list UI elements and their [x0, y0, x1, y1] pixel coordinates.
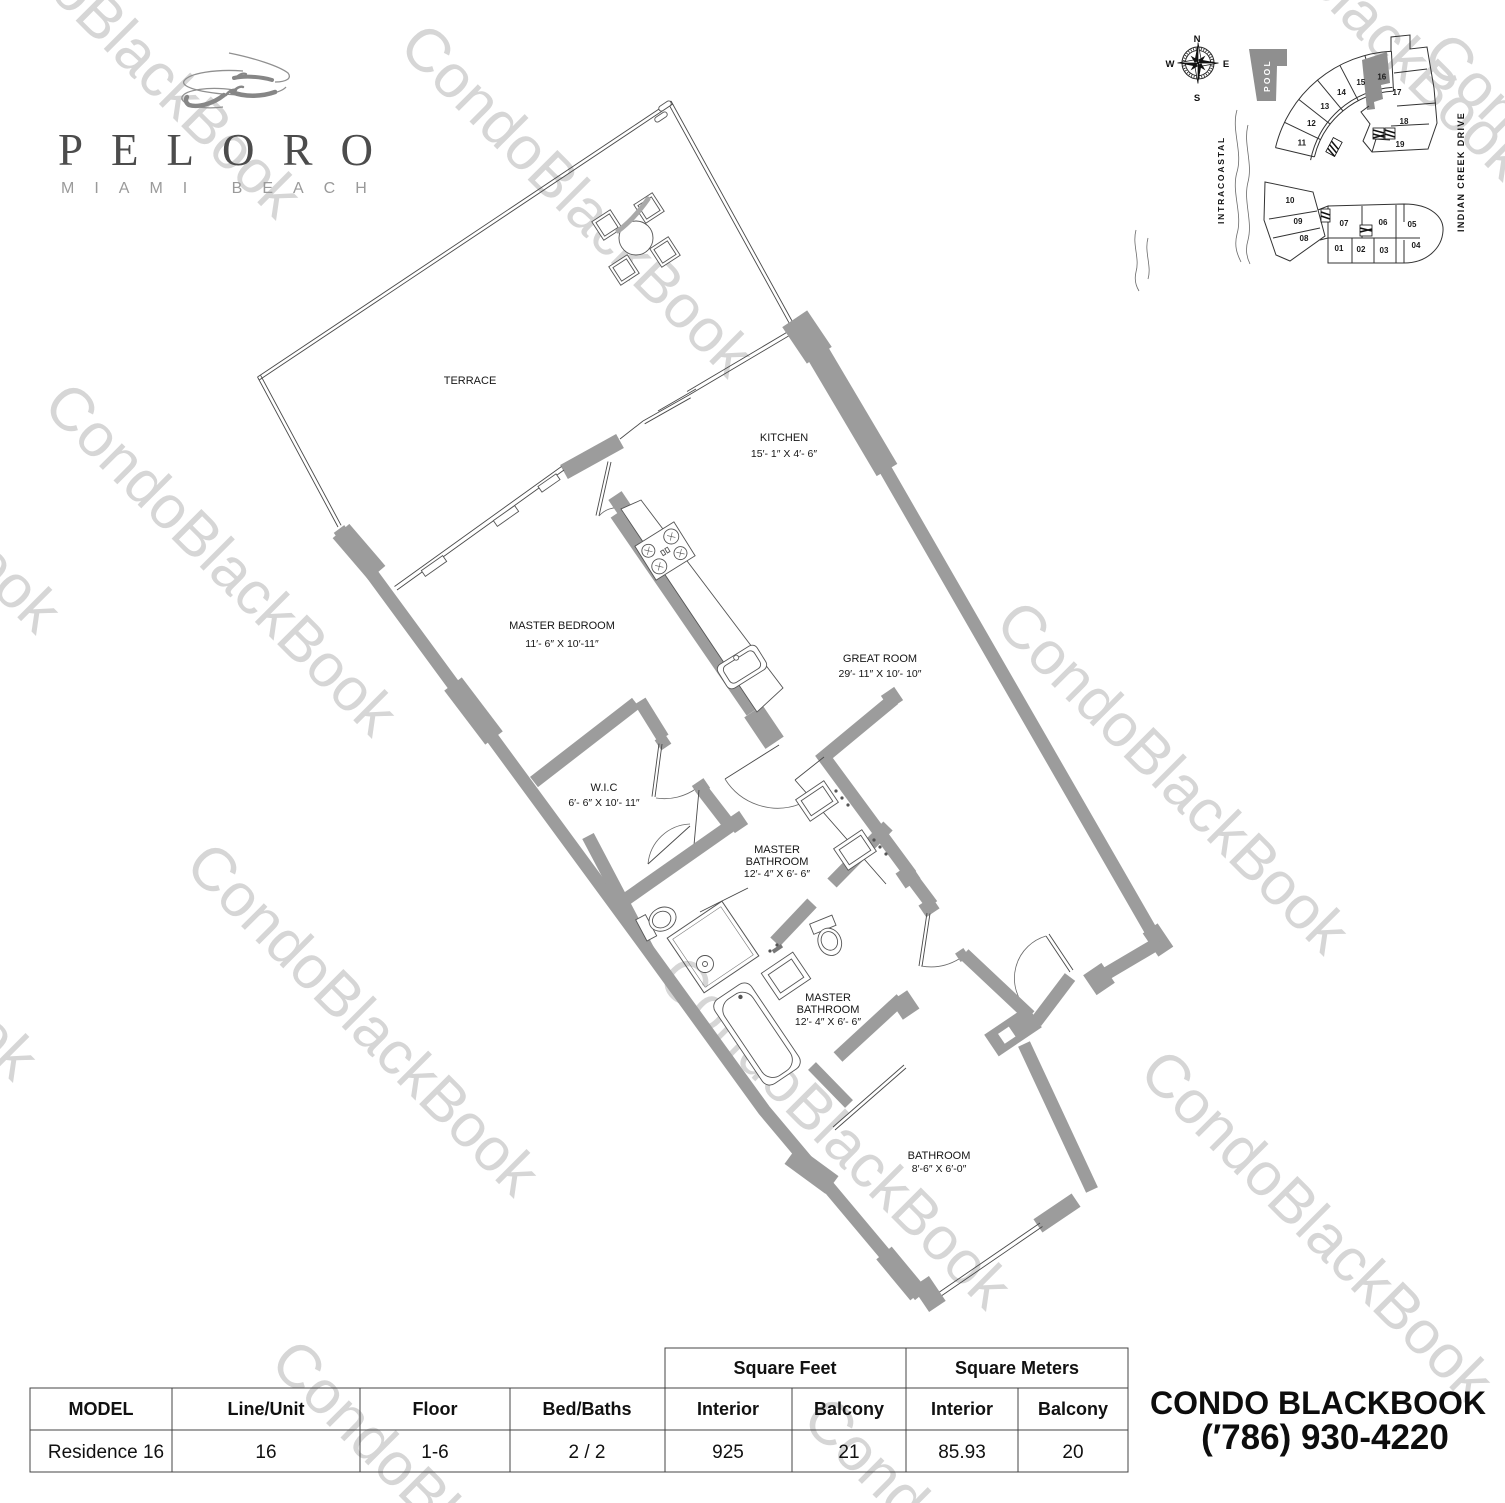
- svg-text:Interior: Interior: [931, 1399, 993, 1419]
- svg-text:05: 05: [1408, 220, 1417, 229]
- svg-text:8′-6″ X 6′-0″: 8′-6″ X 6′-0″: [912, 1163, 967, 1175]
- svg-text:08: 08: [1300, 234, 1309, 243]
- svg-text:29′- 11″ X 10′- 10″: 29′- 11″ X 10′- 10″: [839, 668, 922, 680]
- svg-text:(′786) 930-4220: (′786) 930-4220: [1201, 1418, 1449, 1457]
- svg-text:Bed/Baths: Bed/Baths: [542, 1399, 631, 1419]
- svg-text:12′- 4″ X 6′- 6″: 12′- 4″ X 6′- 6″: [744, 868, 811, 880]
- svg-text:03: 03: [1380, 246, 1389, 255]
- svg-text:Floor: Floor: [413, 1399, 458, 1419]
- svg-text:Balcony: Balcony: [814, 1399, 884, 1419]
- svg-text:07: 07: [1340, 219, 1349, 228]
- svg-text:925: 925: [712, 1442, 744, 1463]
- svg-text:INDIAN CREEK DRIVE: INDIAN CREEK DRIVE: [1456, 112, 1466, 232]
- svg-text:Line/Unit: Line/Unit: [228, 1399, 305, 1419]
- svg-text:2 / 2: 2 / 2: [569, 1442, 606, 1463]
- svg-text:02: 02: [1357, 245, 1366, 254]
- svg-text:Residence 16: Residence 16: [48, 1442, 164, 1463]
- svg-text:11′- 6″ X 10′-11″: 11′- 6″ X 10′-11″: [525, 638, 599, 650]
- svg-text:GREAT ROOM: GREAT ROOM: [843, 653, 917, 665]
- svg-text:MODEL: MODEL: [69, 1399, 134, 1419]
- svg-text:MASTER BEDROOM: MASTER BEDROOM: [509, 620, 615, 632]
- svg-text:INTRACOASTAL: INTRACOASTAL: [1216, 136, 1226, 224]
- svg-text:20: 20: [1062, 1442, 1083, 1463]
- svg-text:PELORO: PELORO: [58, 125, 401, 175]
- svg-text:09: 09: [1294, 217, 1303, 226]
- svg-text:6′- 6″ X 10′- 11″: 6′- 6″ X 10′- 11″: [568, 797, 640, 809]
- svg-text:16: 16: [1377, 72, 1386, 81]
- svg-text:1-6: 1-6: [421, 1442, 448, 1463]
- svg-text:BATHROOM: BATHROOM: [746, 856, 809, 868]
- svg-text:KITCHEN: KITCHEN: [760, 432, 808, 444]
- svg-text:11: 11: [1298, 139, 1307, 148]
- svg-text:W.I.C: W.I.C: [591, 782, 618, 794]
- svg-text:MASTER: MASTER: [754, 844, 800, 856]
- svg-text:BATHROOM: BATHROOM: [797, 1004, 860, 1016]
- svg-text:MASTER: MASTER: [805, 992, 851, 1004]
- svg-text:18: 18: [1400, 117, 1409, 126]
- svg-text:15: 15: [1356, 78, 1365, 87]
- svg-text:CONDO BLACKBOOK: CONDO BLACKBOOK: [1150, 1385, 1486, 1421]
- svg-text:85.93: 85.93: [938, 1442, 986, 1463]
- svg-text:10: 10: [1286, 196, 1295, 205]
- svg-text:13: 13: [1320, 102, 1329, 111]
- svg-text:21: 21: [838, 1442, 859, 1463]
- svg-text:Interior: Interior: [697, 1399, 759, 1419]
- svg-text:12: 12: [1307, 119, 1316, 128]
- svg-text:Square Meters: Square Meters: [955, 1358, 1079, 1378]
- svg-text:19: 19: [1396, 140, 1405, 149]
- svg-text:S: S: [1194, 93, 1200, 104]
- svg-text:N: N: [1194, 34, 1201, 45]
- svg-text:BATHROOM: BATHROOM: [908, 1150, 971, 1162]
- svg-text:16: 16: [255, 1442, 276, 1463]
- svg-text:04: 04: [1412, 241, 1421, 250]
- svg-text:01: 01: [1335, 244, 1344, 253]
- svg-text:MIAMI BEACH: MIAMI BEACH: [61, 180, 387, 197]
- svg-text:Square Feet: Square Feet: [733, 1358, 836, 1378]
- svg-text:15′- 1″ X 4′- 6″: 15′- 1″ X 4′- 6″: [751, 448, 818, 460]
- svg-text:12′- 4″ X 6′- 6″: 12′- 4″ X 6′- 6″: [795, 1016, 862, 1028]
- svg-text:06: 06: [1379, 218, 1388, 227]
- svg-text:POOL: POOL: [1262, 59, 1272, 92]
- svg-text:E: E: [1223, 59, 1229, 70]
- svg-text:17: 17: [1393, 88, 1402, 97]
- svg-text:W: W: [1166, 59, 1175, 70]
- svg-text:TERRACE: TERRACE: [444, 375, 497, 387]
- svg-text:Balcony: Balcony: [1038, 1399, 1108, 1419]
- svg-text:14: 14: [1337, 88, 1346, 97]
